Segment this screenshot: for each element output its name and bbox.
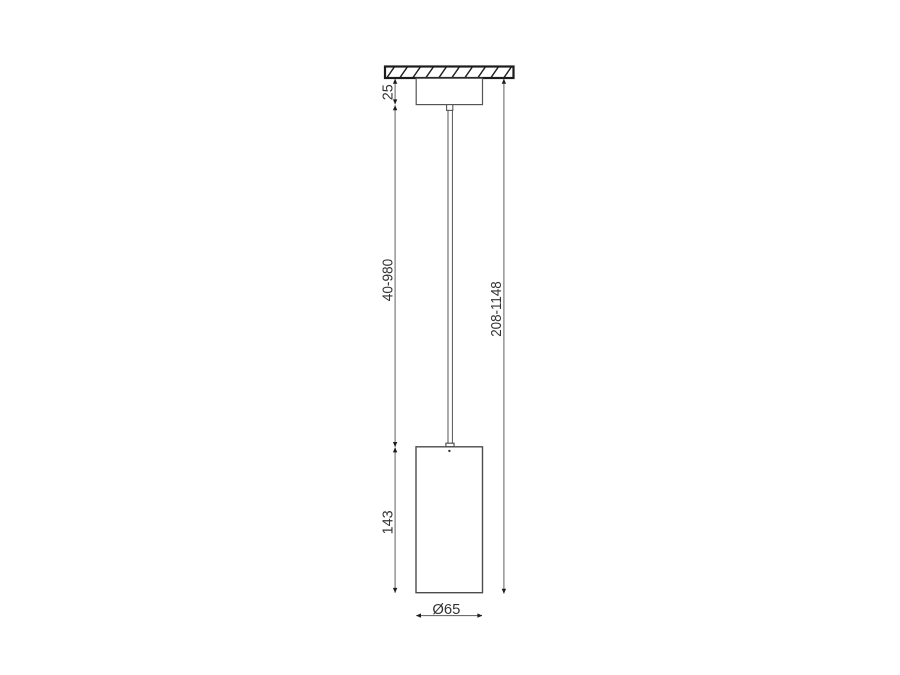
svg-text:208-1148: 208-1148: [489, 281, 505, 337]
svg-text:Ø65: Ø65: [432, 602, 460, 618]
svg-text:143: 143: [381, 510, 397, 534]
svg-text:40-980: 40-980: [381, 259, 397, 302]
svg-text:25: 25: [381, 84, 397, 100]
